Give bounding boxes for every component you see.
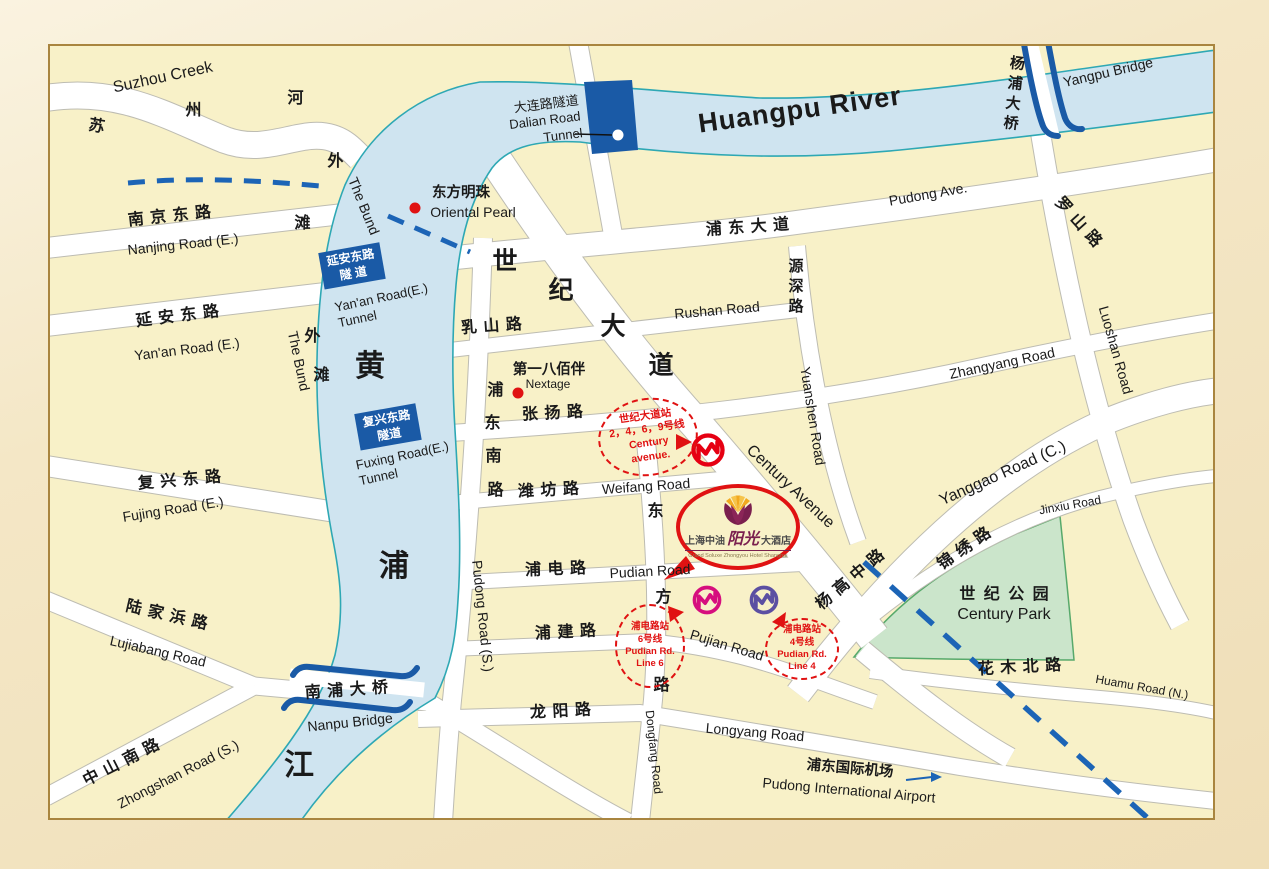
pudongnan-road-cn-3: 南 [485, 449, 502, 465]
pudian-line4-station-line-3: Line 4 [767, 661, 837, 673]
century-ave-cn-2: 纪 [548, 279, 573, 304]
pudian-line6-station-line-3: Line 6 [617, 658, 683, 670]
dongfang-road-cn-1: 东 [647, 504, 664, 520]
waitan-cn-north-1: 外 [327, 154, 344, 170]
suzhou-creek-cn-2: 州 [185, 103, 202, 119]
dongfang-road-cn-2: 方 [655, 590, 672, 606]
hotel-name-script: 阳光 [727, 525, 759, 549]
pudian-line4-station-line-1: 4号线 [767, 637, 837, 649]
century-ave-cn-1: 世 [492, 250, 517, 275]
pudian-line4-station-line-0: 浦电路站 [767, 624, 837, 636]
nextage-en: Nextage [526, 378, 571, 390]
nextage-dot [513, 388, 524, 399]
pudian-line6-station-line-0: 浦电路站 [617, 621, 683, 633]
hotel-badge: 上海中油阳光大酒店 Grand Soluxe Zhongyou Hotel Sh… [676, 484, 800, 570]
waitan-cn-north-2: 滩 [294, 216, 311, 232]
dalian-tunnel-dot [613, 130, 624, 141]
dalian-tunnel-segment [584, 80, 638, 154]
pudongnan-road-cn-2: 东 [484, 416, 501, 432]
suzhou-creek-cn-3: 河 [287, 91, 304, 107]
pudian-line6-station: 浦电路站6号线Pudian Rd.Line 6 [615, 604, 685, 688]
oriental-pearl-en: Oriental Pearl [430, 205, 516, 219]
huangpu-cn-3: 江 [284, 751, 314, 781]
pudongnan-road-cn-4: 路 [487, 483, 504, 499]
longyang-road-cn: 龙 阳 路 [530, 702, 593, 721]
century-ave-cn-4: 道 [648, 354, 673, 379]
hotel-name-cn: 上海中油阳光大酒店 [685, 525, 791, 551]
century-park-cn: 世 纪 公 园 [959, 587, 1050, 603]
pudian-road-cn: 浦 电 路 [525, 561, 587, 579]
pujian-road-cn: 浦 建 路 [535, 623, 598, 642]
pudongnan-road-cn-1: 浦 [487, 383, 504, 399]
hotel-location-map: 上海中油阳光大酒店 Grand Soluxe Zhongyou Hotel Sh… [0, 0, 1269, 869]
suzhou-creek-cn-1: 苏 [87, 118, 107, 137]
waitan-cn-south-1: 外 [304, 329, 321, 345]
metro-logo-line4 [752, 588, 777, 613]
huangpu-cn-2: 浦 [379, 552, 409, 582]
oriental-pearl-cn: 东方明珠 [432, 186, 490, 201]
pudian-line6-station-line-1: 6号线 [617, 634, 683, 646]
pudian-line6-station-line-2: Pudian Rd. [617, 646, 683, 658]
waitan-cn-south-2: 滩 [313, 368, 330, 384]
nextage-cn: 第一八佰伴 [513, 363, 586, 378]
pudian-line4-station: 浦电路站4号线Pudian Rd.Line 4 [765, 618, 839, 680]
airport-arrow [906, 772, 942, 782]
weifang-road-cn: 潍 坊 路 [518, 481, 581, 500]
hotel-name-en: Grand Soluxe Zhongyou Hotel Shanghai [688, 553, 787, 559]
century-park-en: Century Park [957, 607, 1050, 623]
dalian-tunnel-label: 大连路隧道Dalian RoadTunnel [507, 92, 584, 149]
huangpu-cn-1: 黄 [355, 352, 385, 382]
oriental-pearl-dot [410, 203, 421, 214]
hotel-name-suffix: 大酒店 [761, 532, 791, 547]
hotel-name-prefix: 上海中油 [685, 532, 725, 547]
pudian-line4-station-line-2: Pudian Rd. [767, 649, 837, 661]
yuanshen-road-cn: 源深路 [788, 258, 803, 318]
metro-line2-dashed-west [128, 180, 330, 187]
hotel-logo-flower [719, 495, 757, 525]
metro-logo-line6 [695, 588, 720, 613]
zhangyang-road-cn: 张 扬 路 [522, 404, 585, 423]
pudian-road-en: Pudian Road [609, 562, 691, 580]
century-ave-cn-3: 大 [600, 315, 625, 340]
